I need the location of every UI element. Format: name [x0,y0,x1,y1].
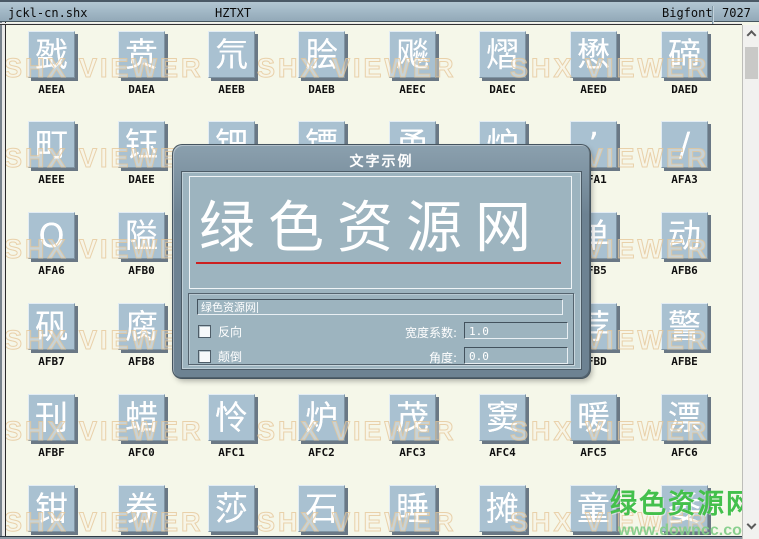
titlebar-font-type: Bigfont [662,6,713,20]
glyph-tile[interactable]: 贲 [118,31,165,78]
scroll-down-button[interactable] [743,516,759,533]
dialog-body: 绿色资源网 绿色资源网 反向 颠倒 宽度系数: 1.0 角度: 0.0 [181,171,582,370]
glyph-code-label: DAEA [96,83,187,96]
glyph-character: 童 [577,486,610,531]
glyph-character: 钰 [125,122,158,167]
preview-panel: 绿色资源网 [189,176,572,289]
glyph-code-label: AEEC [367,83,458,96]
glyph-character: / [679,122,690,167]
glyph-code-label: DAED [639,83,730,96]
glyph-code-label: AEEA [6,83,97,96]
glyph-tile[interactable]: 隘 [118,212,165,259]
glyph-tile[interactable]: 懋 [570,31,617,78]
glyph-character: 飚 [396,32,429,77]
glyph-tile[interactable]: 钳 [28,485,75,532]
glyph-character: 氘 [215,32,248,77]
glyph-character: 熠 [486,32,519,77]
glyph-character: 石 [305,486,338,531]
glyph-character: 钳 [35,486,68,531]
glyph-tile[interactable]: 飚 [389,31,436,78]
glyph-character: 碲 [668,32,701,77]
glyph-code-label: AEEB [186,83,277,96]
glyph-tile[interactable]: 漂 [661,394,708,441]
titlebar: jckl-cn.shx HZTXT Bigfont 7027 [0,0,759,22]
glyph-code-label: AFB6 [639,264,730,277]
titlebar-glyph-count: 7027 [722,6,751,20]
controls-group: 绿色资源网 反向 颠倒 宽度系数: 1.0 角度: 0.0 [188,293,574,365]
sample-text-value: 绿色资源网 [201,302,256,314]
glyph-character: 委 [668,486,701,531]
glyph-tile[interactable]: 茂 [389,394,436,441]
titlebar-divider [712,6,713,24]
glyph-tile[interactable]: 委 [661,485,708,532]
glyph-character: 戤 [35,32,68,77]
reverse-checkbox-label: 反向 [218,323,242,340]
titlebar-font-name: HZTXT [215,6,251,20]
glyph-code-label: DAEC [457,83,548,96]
preview-underline [196,262,561,264]
glyph-tile[interactable]: 睡 [389,485,436,532]
glyph-code-label: AFC5 [548,446,639,459]
glyph-tile[interactable]: 蜡 [118,394,165,441]
glyph-character: 睡 [396,486,429,531]
text-sample-dialog: 文字示例 绿色资源网 绿色资源网 反向 颠倒 宽度系数: 1.0 角度: 0.0 [173,145,590,378]
glyph-code-label: AFC0 [96,446,187,459]
glyph-character: 蜡 [125,395,158,440]
glyph-code-label: AEEE [6,173,97,186]
glyph-tile[interactable]: 券 [118,485,165,532]
glyph-code-label: AEED [548,83,639,96]
angle-label: 角度: [387,349,457,366]
shx-font-viewer-window: { "titlebar": { "filename": "jckl-cn.shx… [0,0,759,539]
glyph-character: 贲 [125,32,158,77]
width-factor-field[interactable]: 1.0 [464,322,568,339]
glyph-code-label: AFC4 [457,446,548,459]
glyph-character: 券 [125,486,158,531]
glyph-tile[interactable]: 刊 [28,394,75,441]
glyph-tile[interactable]: 怜 [208,394,255,441]
glyph-character: 腐 [125,304,158,349]
glyph-character: 窦 [486,395,519,440]
glyph-tile[interactable]: 熠 [479,31,526,78]
glyph-code-label: AFBF [6,446,97,459]
glyph-tile[interactable]: 戤 [28,31,75,78]
glyph-tile[interactable]: / [661,121,708,168]
sample-text-input[interactable]: 绿色资源网 [197,299,563,315]
glyph-character: 炉 [305,395,338,440]
glyph-tile[interactable]: 摊 [479,485,526,532]
glyph-character: 警 [668,304,701,349]
glyph-code-label: AFA6 [6,264,97,277]
width-factor-label: 宽度系数: [387,324,457,341]
glyph-tile[interactable]: 腐 [118,303,165,350]
glyph-character: 刊 [35,395,68,440]
dialog-titlebar[interactable]: 文字示例 [173,145,590,171]
glyph-character: 茂 [396,395,429,440]
glyph-character: 懋 [577,32,610,77]
glyph-character: 怜 [215,395,248,440]
glyph-tile[interactable]: 町 [28,121,75,168]
glyph-tile[interactable]: 童 [570,485,617,532]
glyph-character: 矾 [35,304,68,349]
glyph-character: O [39,213,65,258]
reverse-checkbox[interactable] [198,325,211,338]
glyph-character: 莎 [215,486,248,531]
glyph-tile[interactable]: 氘 [208,31,255,78]
scrollbar[interactable] [742,25,759,539]
angle-field[interactable]: 0.0 [464,347,568,364]
glyph-tile[interactable]: 炉 [298,394,345,441]
scroll-up-button[interactable] [743,28,759,45]
glyph-tile[interactable]: 钰 [118,121,165,168]
glyph-character: 隘 [125,213,158,258]
chevron-down-icon [747,520,757,530]
flip-checkbox-row[interactable]: 颠倒 [198,348,242,365]
glyph-tile[interactable]: 碲 [661,31,708,78]
reverse-checkbox-row[interactable]: 反向 [198,323,242,340]
glyph-tile[interactable]: 矾 [28,303,75,350]
dialog-title: 文字示例 [173,151,590,171]
glyph-code-label: AFB7 [6,355,97,368]
glyph-code-label: AFBE [639,355,730,368]
window-left-border [0,22,6,539]
flip-checkbox-label: 颠倒 [218,348,242,365]
glyph-tile[interactable]: 警 [661,303,708,350]
preview-text: 绿色资源网 [199,183,544,264]
glyph-tile[interactable]: O [28,212,75,259]
glyph-tile[interactable]: 莎 [208,485,255,532]
glyph-tile[interactable]: 脍 [298,31,345,78]
glyph-character: 脍 [305,32,338,77]
glyph-character: 暖 [577,395,610,440]
window-top-border [0,23,742,25]
glyph-tile[interactable]: 石 [298,485,345,532]
text-caret [257,302,258,313]
chevron-up-icon [747,30,757,40]
glyph-tile[interactable]: 暖 [570,394,617,441]
glyph-character: 动 [668,213,701,258]
glyph-character: 漂 [668,395,701,440]
glyph-character: 摊 [486,486,519,531]
scrollbar-thumb[interactable] [745,47,758,79]
glyph-code-label: AFA3 [639,173,730,186]
flip-checkbox[interactable] [198,350,211,363]
titlebar-filename: jckl-cn.shx [8,6,87,20]
glyph-tile[interactable]: 窦 [479,394,526,441]
glyph-code-label: AFC2 [276,446,367,459]
glyph-code-label: AFC1 [186,446,277,459]
glyph-code-label: AFC3 [367,446,458,459]
glyph-tile[interactable]: 动 [661,212,708,259]
glyph-code-label: DAEB [276,83,367,96]
glyph-character: 町 [35,122,68,167]
glyph-code-label: AFC6 [639,446,730,459]
